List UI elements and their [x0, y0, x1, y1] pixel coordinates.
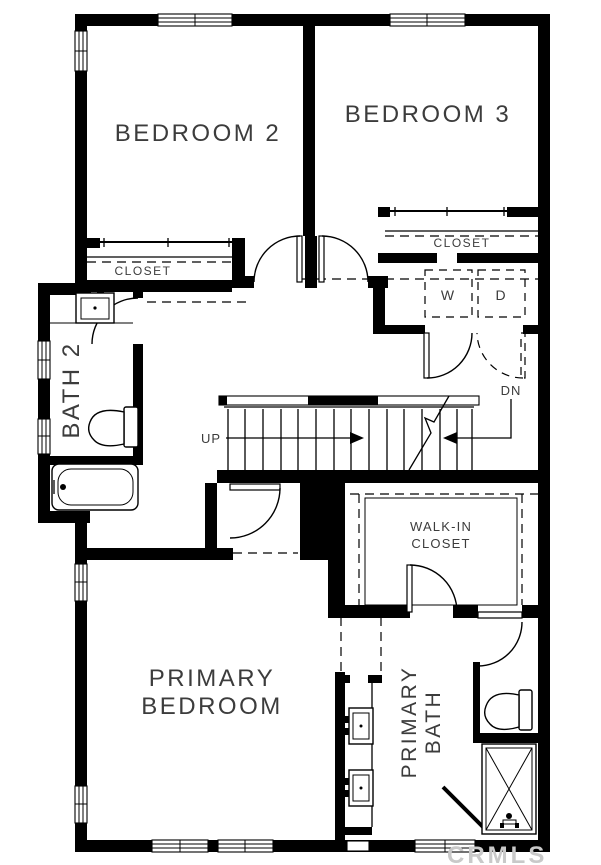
door-primary-bedroom [230, 484, 280, 538]
room-label-primary-bath-1: PRIMARY [398, 666, 421, 779]
up-arrow [226, 432, 364, 444]
toilet-icon [485, 690, 532, 730]
room-label-primary-bedroom-2: BEDROOM [141, 693, 283, 720]
room-label-walk-in-2: CLOSET [411, 536, 470, 551]
window-symbol [75, 31, 87, 71]
door-shower [443, 787, 483, 827]
dryer-label: D [495, 287, 506, 303]
floor-plan-drawing: BEDROOM 2 BEDROOM 3 CLOSET CLOSET W D BA… [0, 0, 601, 865]
window-symbol [38, 419, 50, 454]
room-label-walk-in-1: WALK-IN [410, 519, 472, 534]
sink-icon [344, 770, 373, 806]
room-label-bath-2: BATH 2 [58, 341, 85, 438]
window-symbol [75, 786, 87, 823]
fixtures [50, 288, 536, 834]
door-laundry-left [424, 333, 472, 378]
room-label-bedroom-2: BEDROOM 2 [115, 120, 282, 147]
room-label-primary-bath-2: BATH [422, 690, 445, 754]
window-symbol [390, 14, 465, 26]
bathtub-icon [52, 464, 138, 510]
shower-icon [482, 744, 536, 834]
stairs-dn-label: DN [501, 383, 522, 398]
window-symbol [38, 341, 50, 379]
door-bedroom2 [254, 236, 302, 282]
stairs-up-label: UP [201, 431, 221, 446]
washer-label: W [441, 287, 455, 303]
stairs [219, 396, 511, 470]
door-bedroom3 [319, 236, 368, 282]
watermark-text: CRMLS [447, 842, 547, 865]
floor-plan: BEDROOM 2 BEDROOM 3 CLOSET CLOSET W D BA… [0, 0, 601, 865]
toilet-icon [89, 407, 138, 447]
sink-icon [344, 708, 373, 744]
door-toilet-room [478, 612, 522, 666]
window-symbol [152, 840, 208, 852]
room-label-primary-bedroom-1: PRIMARY [149, 665, 275, 692]
room-label-bedroom-3: BEDROOM 3 [345, 101, 512, 128]
window-symbol [158, 14, 232, 26]
window-symbol [218, 840, 273, 852]
window-symbol [75, 564, 87, 601]
down-arrow [443, 399, 511, 444]
window-symbol [347, 841, 369, 851]
room-label-closet-bedroom3: CLOSET [433, 236, 490, 250]
door-laundry-right [477, 333, 525, 378]
room-label-closet-bedroom2: CLOSET [114, 264, 171, 278]
